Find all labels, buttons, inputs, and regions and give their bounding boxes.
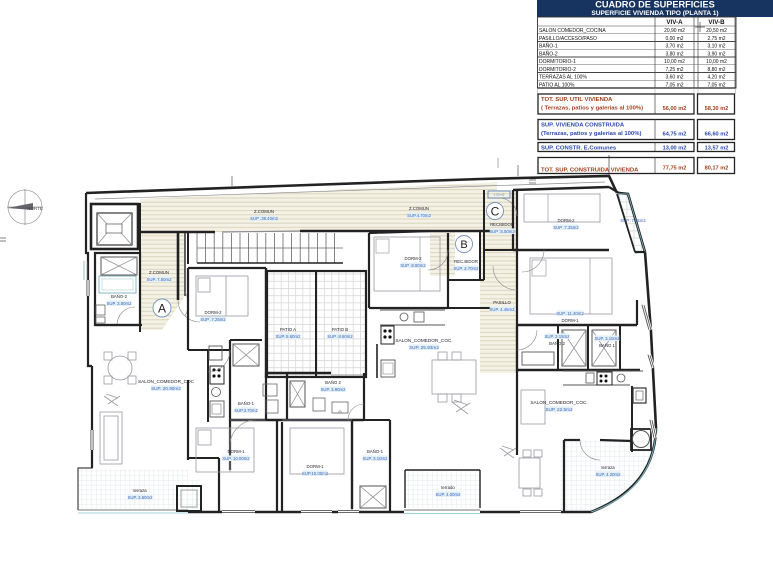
svg-text:20,90 m2: 20,90 m2 <box>664 28 685 34</box>
svg-text:58,30 m2: 58,30 m2 <box>705 106 729 112</box>
svg-text:66,60 m2: 66,60 m2 <box>705 132 729 138</box>
svg-text:7,25 m2: 7,25 m2 <box>665 67 683 73</box>
svg-text:BAÑO-2: BAÑO-2 <box>111 294 128 299</box>
svg-text:SUP. 2.70m2: SUP. 2.70m2 <box>453 266 479 271</box>
svg-text:C: C <box>491 204 500 218</box>
svg-text:SUP :7.05m2: SUP :7.05m2 <box>620 218 646 223</box>
svg-text:PASILLO: PASILLO <box>493 300 511 305</box>
svg-text:TERRAZAS AL 100%: TERRAZAS AL 100% <box>539 75 587 81</box>
svg-text:56,00 m2: 56,00 m2 <box>663 106 687 112</box>
svg-text:SUP :5.50m2: SUP :5.50m2 <box>489 229 515 234</box>
svg-text:BAÑO-1: BAÑO-1 <box>367 449 384 454</box>
svg-text:3,70 m2: 3,70 m2 <box>665 44 683 50</box>
svg-text:7,05 m2: 7,05 m2 <box>707 82 725 88</box>
svg-text:SUP. 22.5m2: SUP. 22.5m2 <box>545 407 573 412</box>
svg-text:SUP .38.40m2: SUP .38.40m2 <box>250 216 278 221</box>
svg-text:PATIO AL 100%: PATIO AL 100% <box>539 82 575 88</box>
svg-text:REC.BIDOR: REC.BIDOR <box>454 259 478 264</box>
svg-text:64,75 m2: 64,75 m2 <box>663 132 687 138</box>
svg-text:PATIO A: PATIO A <box>280 327 296 332</box>
svg-text:terrado: terrado <box>441 485 455 490</box>
svg-text:VIV-A: VIV-A <box>666 19 683 26</box>
svg-text:CUADRO DE SUPERFICIES: CUADRO DE SUPERFICIES <box>595 0 714 10</box>
svg-text:4,20 m2: 4,20 m2 <box>707 75 725 81</box>
svg-text:SUP. 7.50m2: SUP. 7.50m2 <box>146 277 172 282</box>
svg-text:3,10 m2: 3,10 m2 <box>707 44 725 50</box>
svg-text:SUP.4.70m2: SUP.4.70m2 <box>407 213 431 218</box>
svg-text:DORM-1: DORM-1 <box>228 449 246 454</box>
svg-text:DORM-2: DORM-2 <box>558 218 576 223</box>
svg-text:NORTE: NORTE <box>27 206 43 211</box>
svg-text:8,80 m2: 8,80 m2 <box>707 67 725 73</box>
svg-text:SUP.10.00m2: SUP.10.00m2 <box>302 471 329 476</box>
svg-text:DORM-2: DORM-2 <box>405 256 423 261</box>
svg-text:DORM-1: DORM-1 <box>307 464 325 469</box>
svg-text:Z.COMUN: Z.COMUN <box>254 209 274 214</box>
svg-text:SUP. 10.00m2: SUP. 10.00m2 <box>222 456 250 461</box>
svg-text:terraza: terraza <box>133 488 147 493</box>
svg-text:SUP. 20.90m2: SUP. 20.90m2 <box>151 386 181 391</box>
svg-text:SALON COMEDOR_COCINA: SALON COMEDOR_COCINA <box>539 28 606 34</box>
svg-text:20,50 m2: 20,50 m2 <box>706 28 727 34</box>
svg-text:SALON_COMEDOR_COC.: SALON_COMEDOR_COC. <box>395 338 452 343</box>
svg-text:DORM-2: DORM-2 <box>205 310 223 315</box>
svg-text:Z.COMUN: Z.COMUN <box>149 270 169 275</box>
svg-text:3,60 m2: 3,60 m2 <box>665 75 683 81</box>
svg-text:SUP. CONSTR. E.Comunes: SUP. CONSTR. E.Comunes <box>541 145 617 151</box>
svg-text:77,75 m2: 77,75 m2 <box>663 166 687 172</box>
svg-text:SUP. 3.10m2: SUP. 3.10m2 <box>362 456 388 461</box>
svg-text:BAÑO 2: BAÑO 2 <box>325 380 341 385</box>
svg-text:13,57 m2: 13,57 m2 <box>705 145 729 151</box>
svg-text:BAÑO 1: BAÑO 1 <box>599 343 615 348</box>
svg-text:1.20 m2: 1.20 m2 <box>494 193 505 197</box>
svg-text:SUP .8.80m2: SUP .8.80m2 <box>400 263 426 268</box>
svg-text:3,80 m2: 3,80 m2 <box>665 51 683 57</box>
svg-text:0,00 m2: 0,00 m2 <box>665 36 683 42</box>
svg-text:DORMITORIO-2: DORMITORIO-2 <box>539 67 576 73</box>
svg-text:10,00 m2: 10,00 m2 <box>664 59 685 65</box>
svg-text:SUP. 8.60m2: SUP. 8.60m2 <box>275 334 301 339</box>
svg-text:A: A <box>158 301 166 315</box>
svg-text:SUP .11.40m2: SUP .11.40m2 <box>556 311 584 316</box>
svg-text:SUP .8.60m2: SUP .8.60m2 <box>327 334 353 339</box>
svg-text:SUP. 3.60m2: SUP. 3.60m2 <box>127 495 153 500</box>
svg-text:(Terrazas, patios y galerias a: (Terrazas, patios y galerias al 100%) <box>541 131 641 137</box>
svg-text:terraza: terraza <box>601 465 615 470</box>
svg-text:RECIBIDOR: RECIBIDOR <box>490 222 514 227</box>
svg-text:PASILLO/ACCESO/PASO: PASILLO/ACCESO/PASO <box>539 36 597 42</box>
svg-text:2,75 m2: 2,75 m2 <box>707 36 725 42</box>
svg-text:SUP. 25.93m2: SUP. 25.93m2 <box>409 345 439 350</box>
svg-text:SUP. 4.20m2: SUP. 4.20m2 <box>595 472 621 477</box>
svg-text:SUP.3.70m2: SUP.3.70m2 <box>234 408 258 413</box>
svg-text:SUP. VIVIENDA CONSTRUIDA: SUP. VIVIENDA CONSTRUIDA <box>541 123 625 129</box>
svg-text:SUP. 4.45m2: SUP. 4.45m2 <box>489 307 515 312</box>
svg-text:PATIO B: PATIO B <box>332 327 348 332</box>
svg-text:7,05 m2: 7,05 m2 <box>665 82 683 88</box>
svg-text:DORMITORIO-1: DORMITORIO-1 <box>539 59 576 65</box>
svg-text:SUP. 4.00m2: SUP. 4.00m2 <box>435 492 461 497</box>
svg-text:Z.COMUN: Z.COMUN <box>409 206 429 211</box>
svg-text:BAÑO-1: BAÑO-1 <box>238 401 255 406</box>
svg-text:13,00 m2: 13,00 m2 <box>663 145 687 151</box>
svg-text:SUPERFICIE VIVIENDA TIPO (PLA: SUPERFICIE VIVIENDA TIPO (PLANTA 1) <box>591 10 718 17</box>
svg-text:SUP. 3.10m2: SUP. 3.10m2 <box>594 336 620 341</box>
svg-text:SUP .7.25m2: SUP .7.25m2 <box>553 225 579 230</box>
svg-text:BAÑO-1: BAÑO-1 <box>539 43 558 50</box>
svg-text:SUP .7.25m2: SUP .7.25m2 <box>200 317 226 322</box>
svg-text:10,00 m2: 10,00 m2 <box>706 59 727 65</box>
svg-text:TOT. SUP. UTIL VIVIENDA: TOT. SUP. UTIL VIVIENDA <box>541 97 613 103</box>
svg-text:SUP. 3.90m2: SUP. 3.90m2 <box>320 387 346 392</box>
svg-text:SALON_COMEDOR_COC.: SALON_COMEDOR_COC. <box>530 400 587 405</box>
svg-text:BAÑO 2: BAÑO 2 <box>549 341 565 346</box>
svg-text:80,17 m2: 80,17 m2 <box>705 166 729 172</box>
svg-text:3,90 m2: 3,90 m2 <box>707 51 725 57</box>
svg-text:BAÑO-2: BAÑO-2 <box>539 50 558 57</box>
svg-text:( Terrazas, patios y galerias: ( Terrazas, patios y galerias al 100%) <box>541 105 643 111</box>
svg-text:SUP. 3.15m2: SUP. 3.15m2 <box>544 334 570 339</box>
svg-text:SUP. 3.80m2: SUP. 3.80m2 <box>106 301 132 306</box>
svg-text:TOT. SUP. CONSTRUIDA VIVIENDA: TOT. SUP. CONSTRUIDA VIVIENDA <box>541 167 639 173</box>
svg-text:VIV-B: VIV-B <box>708 19 725 26</box>
svg-text:SALON_COMEDOR_COC: SALON_COMEDOR_COC <box>138 379 195 384</box>
svg-text:DORM-1: DORM-1 <box>562 318 580 323</box>
svg-text:B: B <box>460 239 467 251</box>
